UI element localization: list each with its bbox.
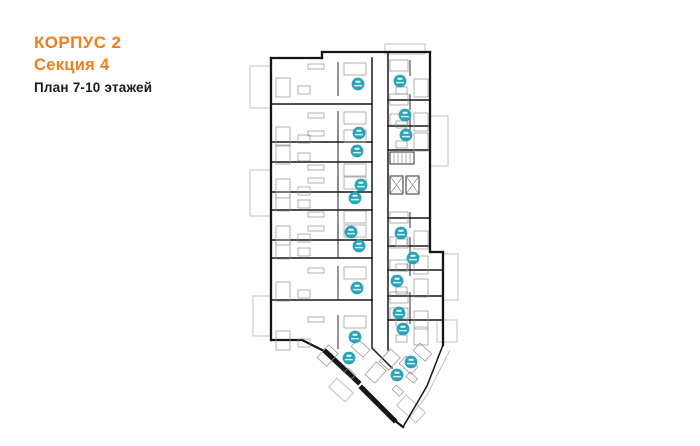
- unit-marker[interactable]: [395, 227, 408, 240]
- unit-marker[interactable]: [353, 240, 366, 253]
- unit-marker[interactable]: [397, 323, 410, 336]
- unit-marker[interactable]: [349, 192, 362, 205]
- stair-elevator-core: [390, 152, 419, 194]
- unit-marker[interactable]: [405, 356, 418, 369]
- unit-marker[interactable]: [407, 252, 420, 265]
- unit-marker[interactable]: [352, 78, 365, 91]
- unit-marker[interactable]: [399, 109, 412, 122]
- unit-marker[interactable]: [353, 127, 366, 140]
- unit-marker[interactable]: [391, 369, 404, 382]
- unit-marker[interactable]: [393, 307, 406, 320]
- unit-marker[interactable]: [391, 275, 404, 288]
- page: КОРПУС 2 Секция 4 План 7-10 этажей: [0, 0, 700, 446]
- unit-marker[interactable]: [349, 331, 362, 344]
- unit-markers: [343, 75, 420, 382]
- unit-marker[interactable]: [343, 352, 356, 365]
- unit-marker[interactable]: [355, 179, 368, 192]
- unit-marker[interactable]: [394, 75, 407, 88]
- unit-marker[interactable]: [345, 226, 358, 239]
- unit-marker[interactable]: [351, 145, 364, 158]
- floor-plan: [0, 0, 700, 446]
- unit-marker[interactable]: [400, 129, 413, 142]
- unit-marker[interactable]: [351, 282, 364, 295]
